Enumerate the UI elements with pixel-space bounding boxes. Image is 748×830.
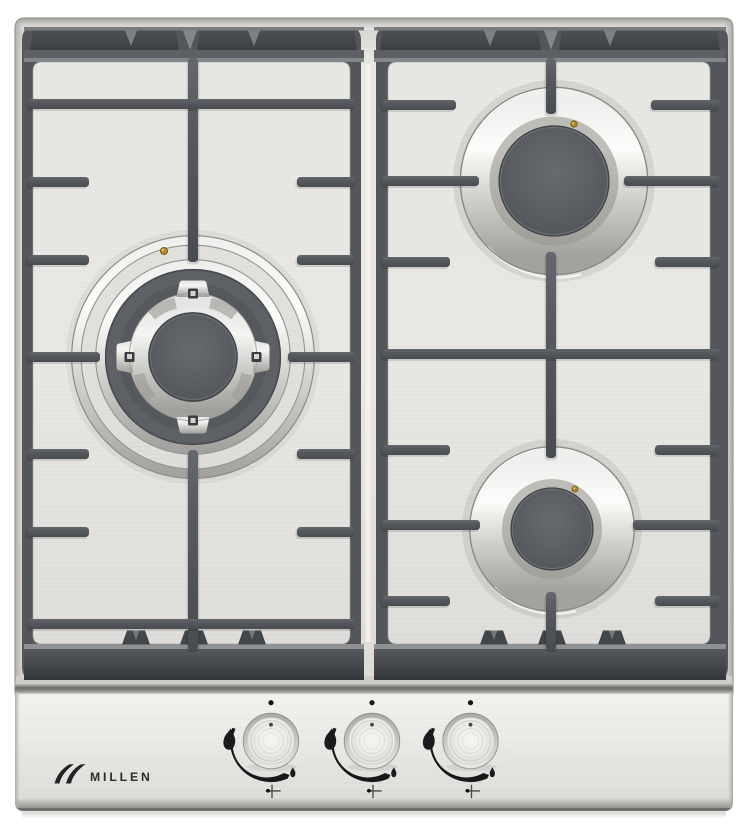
svg-text:MILLEN: MILLEN bbox=[90, 770, 153, 784]
